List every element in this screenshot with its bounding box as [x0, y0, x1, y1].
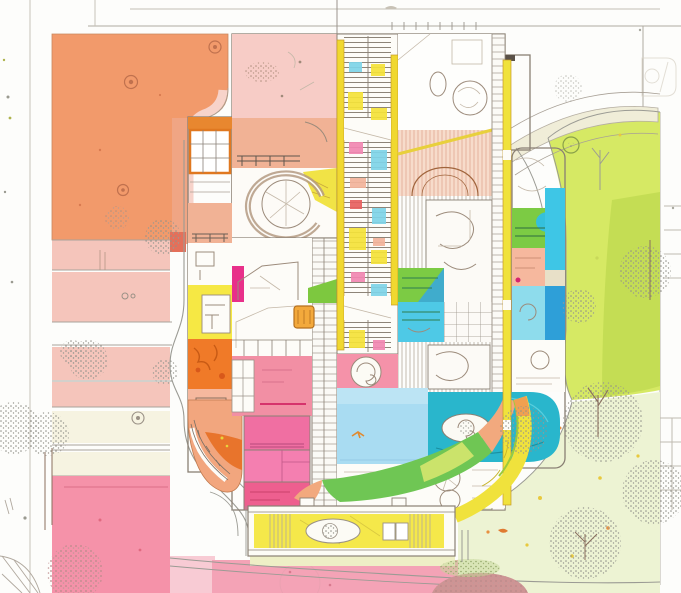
tree	[562, 289, 596, 323]
magenta-room-upper	[244, 416, 310, 450]
stipple-cloud	[245, 62, 279, 82]
stair-rail-right	[391, 55, 398, 305]
site-plan-page	[0, 0, 681, 593]
magenta-room-lower	[244, 450, 310, 482]
stair-core	[337, 34, 398, 354]
site-plan-drawing	[0, 0, 681, 593]
northwest-rooms	[232, 34, 337, 239]
east-lightcyan-room	[512, 286, 545, 340]
midwest-rooms	[232, 238, 337, 512]
east-blue-block	[545, 286, 565, 340]
tree	[105, 206, 129, 230]
south-bar	[246, 498, 455, 556]
orange-window-room	[190, 130, 230, 173]
tree	[152, 359, 178, 385]
east-beige-block	[545, 270, 565, 286]
tree	[563, 382, 643, 462]
east-cyan-block	[545, 188, 565, 270]
cyan-room	[398, 302, 444, 342]
tree	[145, 219, 181, 255]
stair-rail-left	[337, 40, 344, 350]
orange-room	[188, 339, 232, 389]
tree	[549, 507, 621, 579]
tree	[500, 406, 548, 454]
